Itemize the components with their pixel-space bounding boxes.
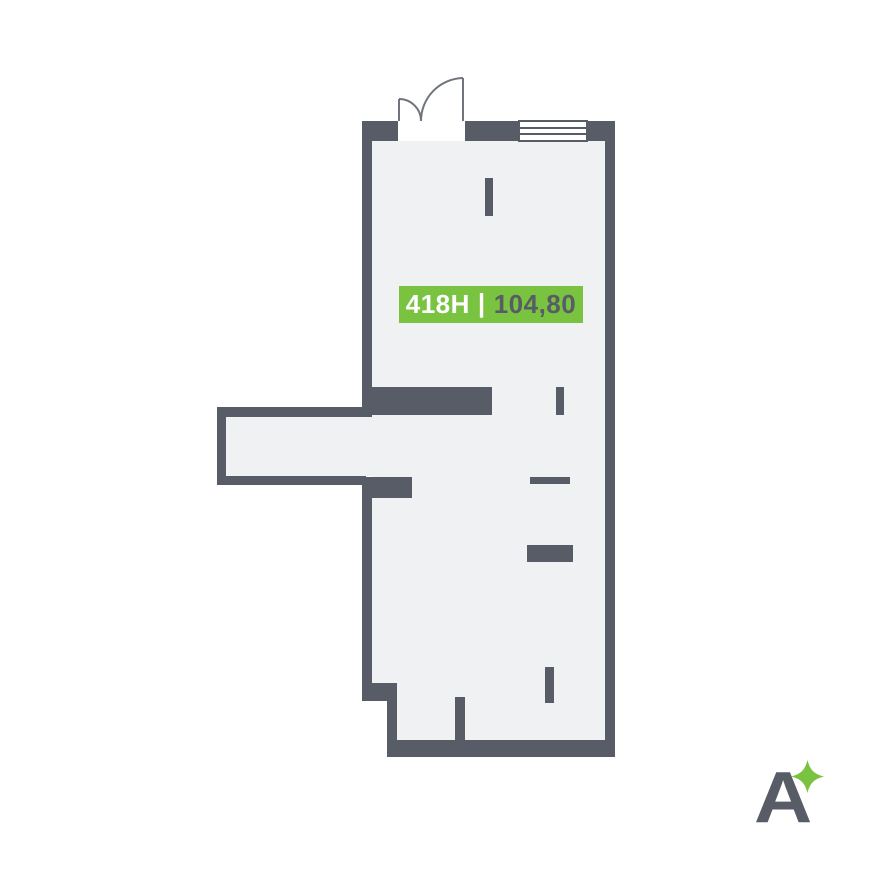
right-wall bbox=[605, 121, 615, 757]
door-leaf-small-swing-arc bbox=[399, 99, 421, 121]
left-wall-upper bbox=[362, 121, 372, 417]
bottom-wall bbox=[387, 740, 615, 757]
floorplan-canvas: 418H | 104,80 A bbox=[0, 0, 880, 880]
corridor-top-wall bbox=[217, 407, 366, 417]
sparkle-icon bbox=[791, 760, 824, 793]
floorplan-drawing bbox=[0, 0, 880, 880]
brand-logo: A bbox=[752, 756, 856, 856]
top-wall-mid bbox=[465, 121, 519, 141]
corridor-left-wall bbox=[217, 407, 226, 485]
corridor-bottom-wall bbox=[217, 476, 366, 485]
partition-bar-low bbox=[527, 545, 573, 562]
door-leaf-large-swing-arc bbox=[421, 78, 463, 121]
bottom-stub-wall bbox=[455, 697, 465, 740]
step-wall-vertical bbox=[387, 701, 397, 745]
partition-stub-top bbox=[485, 178, 493, 216]
unit-code: 418H bbox=[406, 289, 470, 320]
window-symbol bbox=[519, 121, 587, 141]
corridor-floor bbox=[226, 417, 372, 476]
floating-stub-wall bbox=[545, 667, 554, 703]
left-wall-lower bbox=[362, 477, 372, 691]
label-separator: | bbox=[478, 288, 486, 319]
main-room-floor bbox=[372, 141, 605, 740]
step-wall-horizontal bbox=[362, 683, 397, 701]
partition-line-mid bbox=[530, 477, 570, 484]
unit-area-badge[interactable]: 418H | 104,80 bbox=[399, 286, 583, 323]
interior-wall-top bbox=[366, 387, 492, 415]
partition-stub-mid bbox=[556, 387, 564, 415]
unit-area-value: 104,80 bbox=[494, 289, 577, 320]
